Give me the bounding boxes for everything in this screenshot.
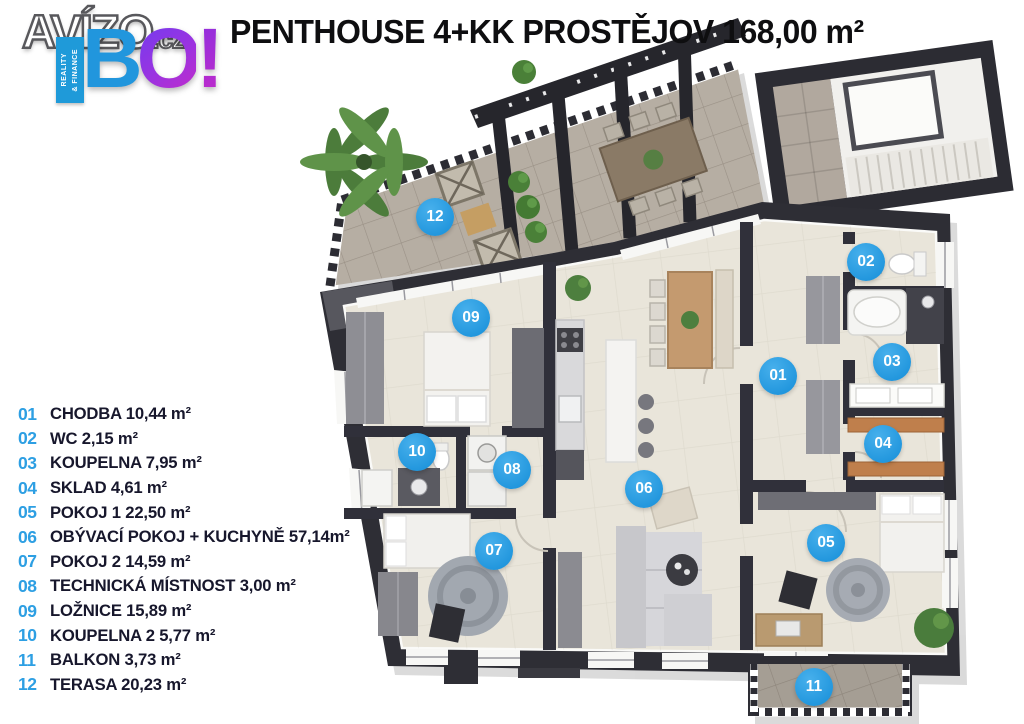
room-marker-number: 09 — [462, 309, 479, 327]
room-marker-number: 11 — [806, 678, 822, 696]
room-marker: 05 — [807, 524, 845, 562]
room-marker-number: 04 — [874, 435, 891, 453]
room-marker: 04 — [864, 425, 902, 463]
room-marker: 08 — [493, 451, 531, 489]
room-marker: 02 — [847, 243, 885, 281]
room-marker-number: 06 — [635, 480, 652, 498]
room-marker: 09 — [452, 299, 490, 337]
room-marker-number: 02 — [857, 253, 874, 271]
room-markers: 01 02 03 04 05 06 07 — [0, 0, 1024, 724]
screenshot-root: AVÍZO.cz REALITY & FINANCE BO! PENTHOUSE… — [0, 0, 1024, 724]
room-marker: 01 — [759, 357, 797, 395]
room-marker-number: 10 — [408, 443, 425, 461]
room-marker-number: 08 — [503, 461, 520, 479]
room-marker-number: 07 — [485, 542, 502, 560]
room-marker: 06 — [625, 470, 663, 508]
room-marker: 10 — [398, 433, 436, 471]
room-marker: 03 — [873, 343, 911, 381]
room-marker: 07 — [475, 532, 513, 570]
room-marker: 12 — [416, 198, 454, 236]
room-marker-number: 05 — [817, 534, 834, 552]
room-marker-number: 03 — [883, 353, 900, 371]
room-marker-number: 01 — [769, 367, 786, 385]
room-marker-number: 12 — [426, 208, 443, 226]
room-marker: 11 — [795, 668, 833, 706]
